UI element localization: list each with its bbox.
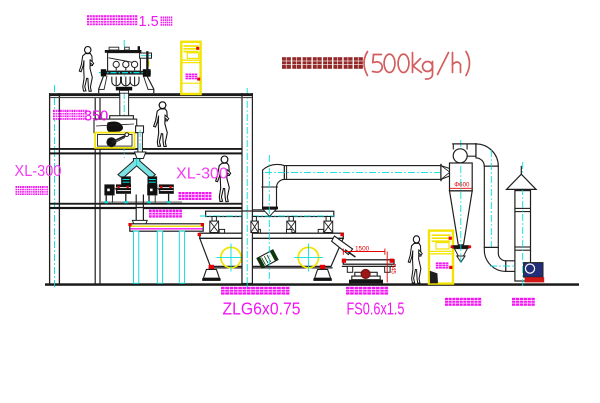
svg-text:FS0.6x1.5: FS0.6x1.5 [347,299,405,319]
svg-text:1.5: 1.5 [139,14,159,30]
svg-text:350: 350 [84,108,108,124]
svg-text:XL-300: XL-300 [15,163,62,180]
svg-text:ZLG6x0.75: ZLG6x0.75 [223,299,301,319]
svg-text:XL-300: XL-300 [176,166,228,183]
svg-text:545: 545 [390,264,397,275]
svg-text:1500: 1500 [355,245,370,252]
svg-text:Φ600: Φ600 [454,182,470,189]
